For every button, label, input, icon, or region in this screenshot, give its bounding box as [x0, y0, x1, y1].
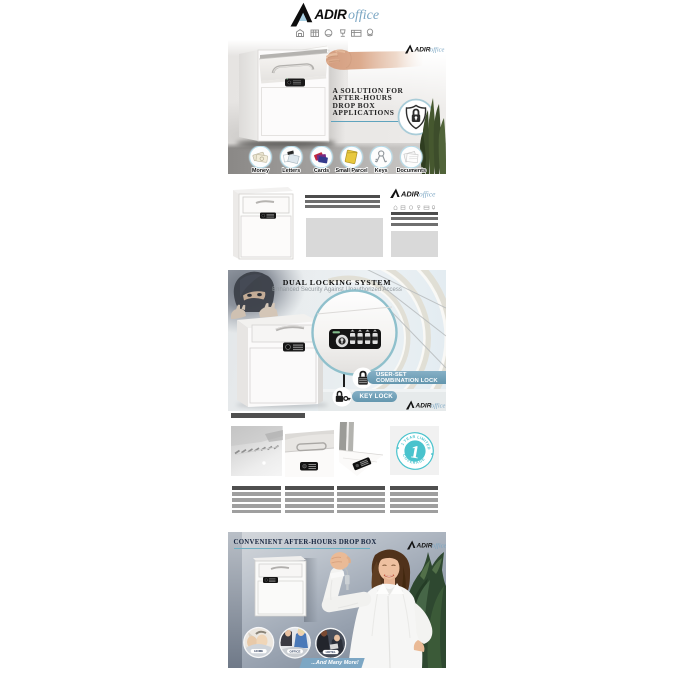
svg-text:ADIR: ADIR: [414, 47, 431, 54]
svg-text:OFFICE: OFFICE: [290, 649, 301, 653]
svg-text:ADIR: ADIR: [314, 7, 348, 22]
svg-text:HOTEL: HOTEL: [326, 650, 336, 654]
svg-text:HOME: HOME: [254, 649, 263, 653]
svg-text:office: office: [348, 8, 379, 23]
svg-text:Cards: Cards: [314, 168, 329, 174]
svg-text:Keys: Keys: [375, 168, 388, 174]
svg-text:Money: Money: [252, 168, 269, 174]
svg-text:ADIR: ADIR: [415, 403, 432, 410]
svg-text:Small Parcel: Small Parcel: [336, 168, 369, 174]
svg-text:office: office: [431, 403, 446, 410]
svg-text:Letters: Letters: [282, 168, 300, 174]
svg-text:office: office: [430, 47, 445, 54]
svg-text:Documents: Documents: [397, 168, 426, 174]
